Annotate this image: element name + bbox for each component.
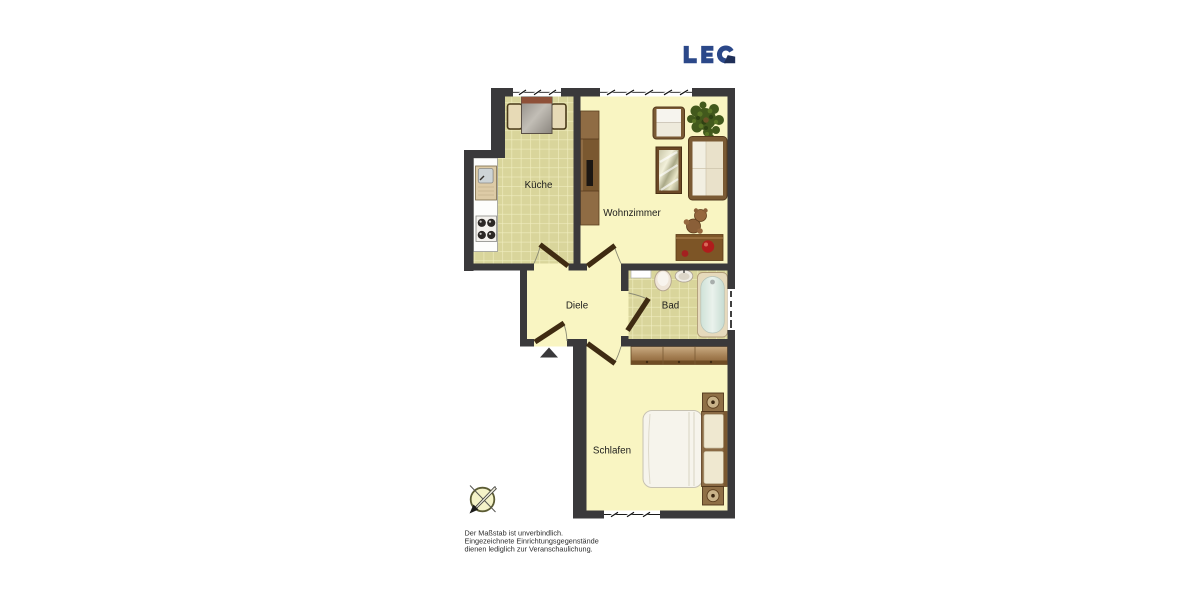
svg-text:Schlafen: Schlafen <box>593 446 631 457</box>
svg-text:Wohnzimmer: Wohnzimmer <box>603 208 661 219</box>
svg-text:Küche: Küche <box>525 180 553 191</box>
svg-text:dienen lediglich zur Veranscha: dienen lediglich zur Veranschaulichung. <box>465 545 593 554</box>
svg-text:Bad: Bad <box>662 301 679 312</box>
svg-text:Diele: Diele <box>566 301 589 312</box>
